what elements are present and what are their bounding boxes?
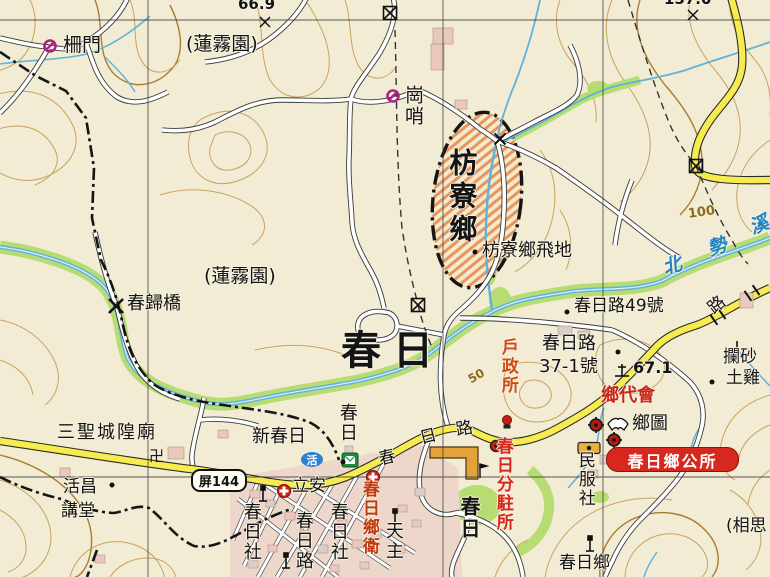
label-xiangsi-partial: (相思 bbox=[726, 518, 767, 536]
map-artwork bbox=[0, 0, 770, 577]
label-chunri-vertical-park: 春日 bbox=[458, 496, 479, 540]
household-registration-icon bbox=[503, 416, 512, 429]
label-chunri-town: 春日 bbox=[341, 330, 445, 372]
label-lianwu-orchard-north: (蓮霧園) bbox=[186, 35, 258, 55]
library-book-icon bbox=[608, 418, 628, 430]
label-household-registration-office: 戶政所 bbox=[498, 338, 516, 395]
label-minfushe: 民服社 bbox=[575, 451, 593, 508]
label-chunri-she-east: 春日社 bbox=[328, 502, 347, 562]
label-township-library: 鄉圖 bbox=[632, 415, 668, 434]
label-xin-chunri: 新春日 bbox=[252, 428, 306, 447]
activity-center-icon: 活 bbox=[301, 452, 323, 467]
label-huochang-line2: 講堂 bbox=[61, 503, 95, 521]
label-health-station: 春日鄉衛 bbox=[359, 480, 377, 556]
label-township-office-badge: 春日鄉公所 bbox=[606, 447, 739, 472]
label-zhamen-gate: 柵門 bbox=[63, 36, 101, 56]
label-tuji: 土雞 bbox=[726, 370, 760, 388]
label-township-council: 鄉代會 bbox=[601, 387, 655, 406]
spot-height-67-1: 67.1 bbox=[633, 360, 672, 377]
label-sansheng-temple: 三聖城隍廟 bbox=[57, 424, 157, 443]
temple-swastika-icon: 卍 bbox=[149, 449, 164, 465]
label-chungui-bridge: 春歸橋 bbox=[127, 295, 181, 314]
label-chunri-road-vertical: 春日路 bbox=[293, 511, 312, 571]
label-fangliao-township: 枋寮鄉 bbox=[447, 148, 476, 247]
spot-height-66-9: 66.9 bbox=[238, 0, 275, 13]
label-catholic-church: 天主 bbox=[383, 521, 402, 561]
spot-height-157-0: 157.0 bbox=[664, 0, 711, 8]
label-lian-an: 立安 bbox=[292, 478, 326, 496]
label-gangshao-sentry: 崗哨 bbox=[402, 85, 422, 127]
label-lansha: 攔砂 bbox=[723, 349, 757, 367]
label-chunri-vertical-river: 春日 bbox=[337, 403, 356, 443]
label-huochang-line1: 活昌 bbox=[63, 479, 97, 497]
map-canvas[interactable]: 66.9 157.0 柵門 (蓮霧園) 崗哨 枋寮鄉 枋寮鄉飛地 (蓮霧園) 春… bbox=[0, 0, 770, 577]
label-chunri-she-west: 春日社 bbox=[241, 502, 260, 562]
label-address-37-line2: 37-1號 bbox=[539, 358, 598, 377]
medical-cross-icon bbox=[278, 485, 291, 498]
label-police-substation: 春日分駐所 bbox=[493, 437, 511, 532]
label-address-37-line1: 春日路 bbox=[542, 335, 596, 354]
label-address-49: 春日路49號 bbox=[574, 298, 664, 316]
label-lianwu-orchard-south: (蓮霧園) bbox=[204, 267, 276, 287]
label-chunri-township: 春日鄉 bbox=[559, 555, 610, 573]
road-name-char: 路 bbox=[455, 420, 475, 441]
label-fangliao-enclave: 枋寮鄉飛地 bbox=[482, 242, 572, 261]
road-shield-ping144: 屏144 bbox=[191, 469, 247, 492]
